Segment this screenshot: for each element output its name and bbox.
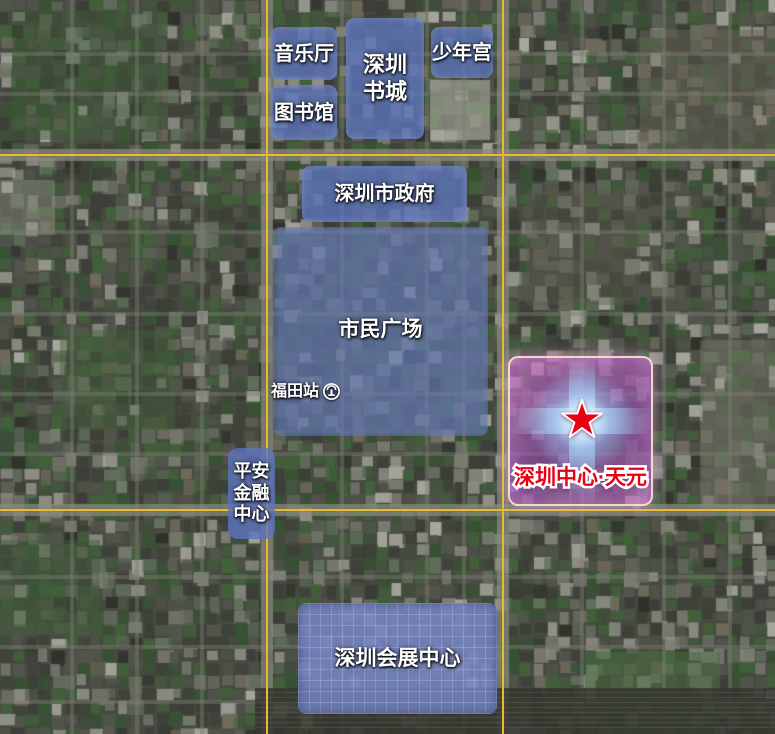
poi-label-book-city: 深圳书城 [362, 52, 408, 105]
poi-label-children-palace: 少年宫 [432, 41, 492, 65]
road-grid-line-vertical-left [266, 0, 268, 734]
road-grid-line-horizontal-top [0, 154, 775, 156]
poi-overlay-convention-center: 深圳会展中心 [298, 603, 497, 714]
satellite-map: 音乐厅 图书馆 深圳书城 少年宫 深圳市政府 市民广场 福田站 平安金融中心 深… [0, 0, 775, 734]
poi-label-futian-station: 福田站 [271, 382, 319, 401]
poi-label-convention-center: 深圳会展中心 [335, 646, 461, 671]
poi-overlay-concert-hall: 音乐厅 [271, 27, 337, 80]
poi-overlay-children-palace: 少年宫 [431, 27, 493, 78]
project-parcel-overlay: 深圳中心·天元 深圳中心·天元 [508, 356, 653, 506]
poi-label-concert-hall: 音乐厅 [274, 42, 334, 66]
project-name-label: 深圳中心·天元 深圳中心·天元 [514, 461, 647, 491]
red-star-icon [558, 399, 606, 445]
poi-label-pingan-finance-center: 平安金融中心 [233, 461, 270, 526]
railway-station-icon [322, 382, 341, 401]
poi-overlay-library: 图书馆 [271, 85, 337, 140]
project-name-label-text: 深圳中心·天元 [514, 466, 647, 489]
poi-label-city-government: 深圳市政府 [335, 182, 435, 206]
poi-futian-station: 福田站 [271, 382, 341, 401]
road-grid-line-horizontal-bottom [0, 509, 775, 511]
poi-overlay-pingan-finance-center: 平安金融中心 [228, 448, 275, 539]
poi-label-civic-square: 市民广场 [339, 317, 423, 342]
poi-overlay-book-city: 深圳书城 [346, 18, 424, 139]
road-grid-line-vertical-right [502, 0, 504, 734]
poi-overlay-city-government: 深圳市政府 [302, 166, 467, 222]
poi-overlay-civic-square: 市民广场 [273, 227, 488, 436]
poi-label-library: 图书馆 [274, 101, 334, 125]
